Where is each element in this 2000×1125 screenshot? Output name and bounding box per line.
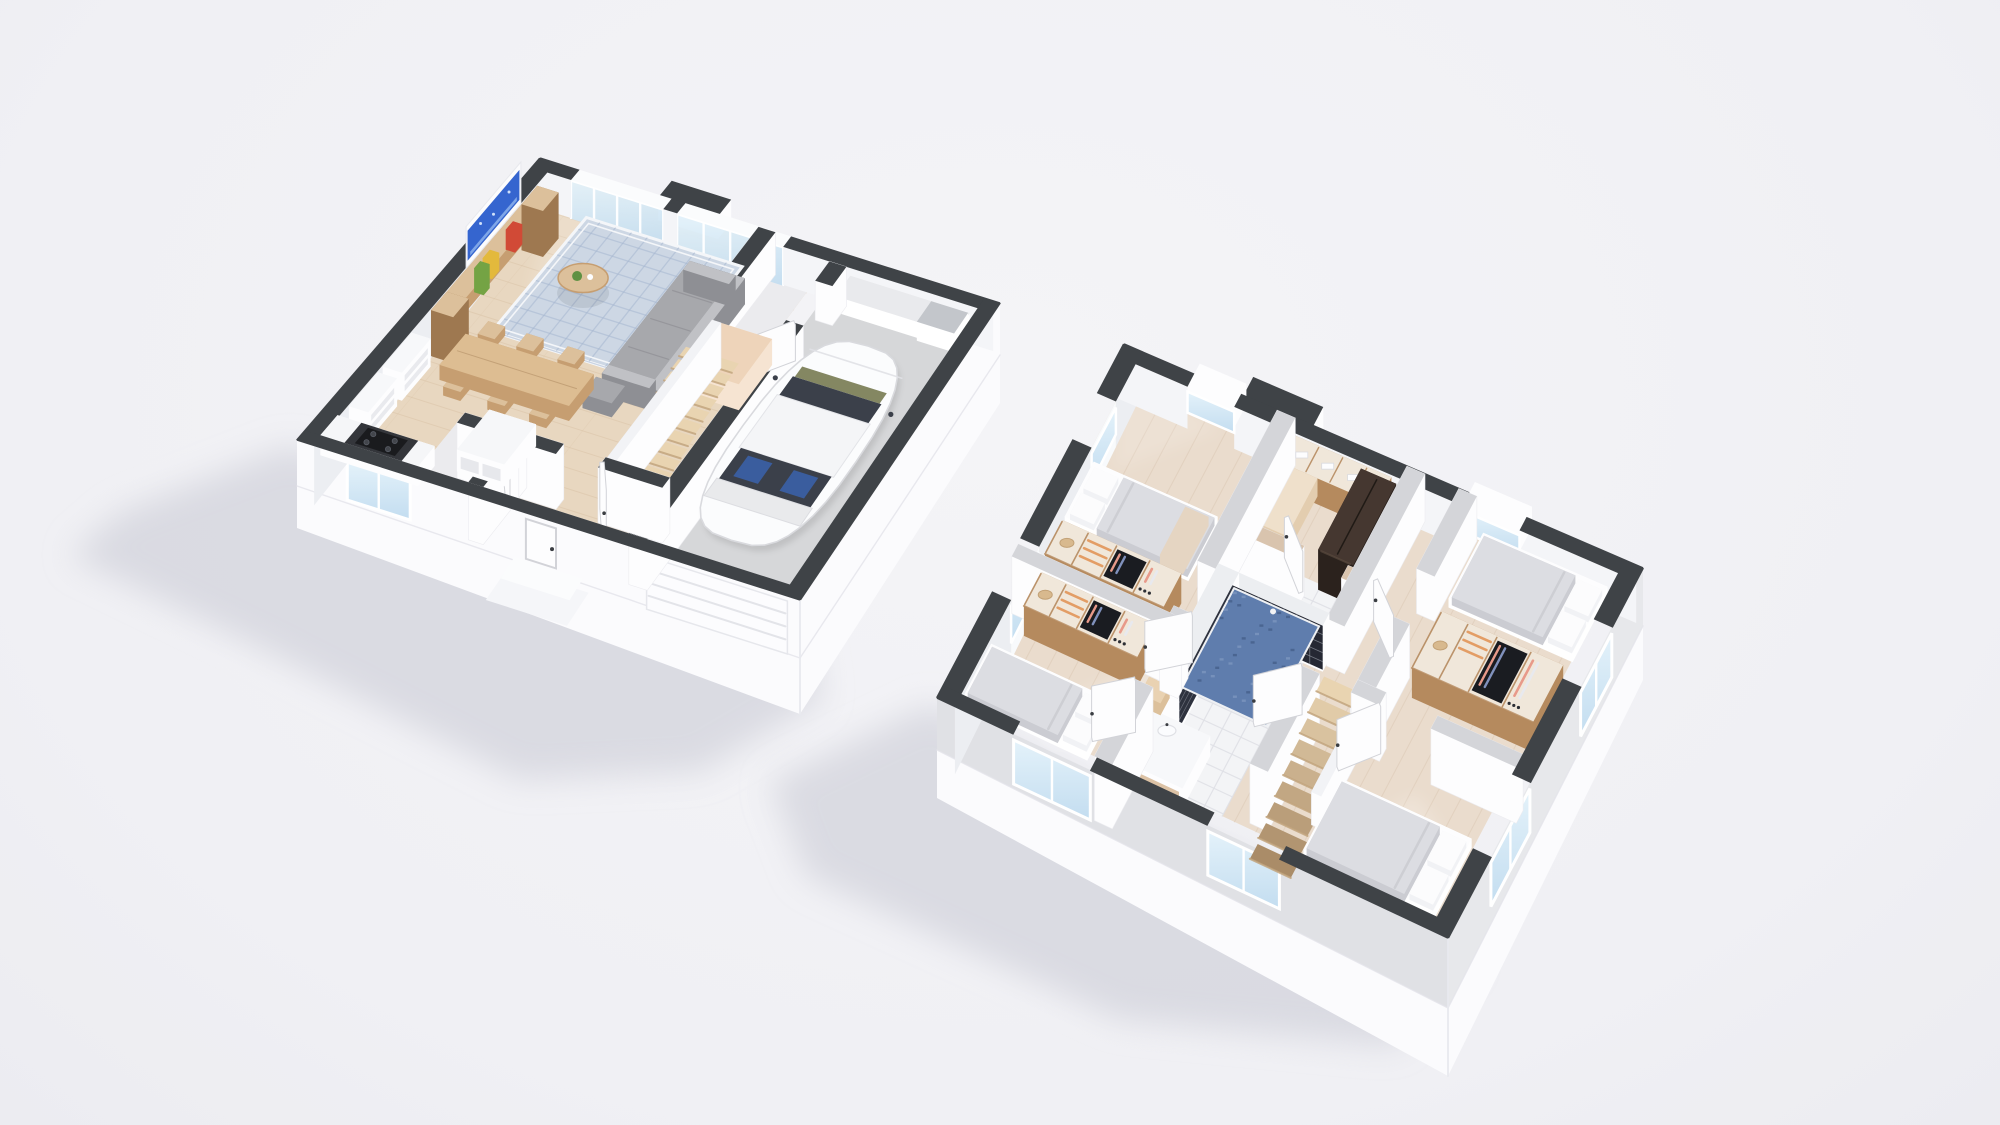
bedroom3-door (1090, 677, 1135, 742)
coffee-table (557, 264, 609, 309)
entry-door (526, 519, 556, 569)
ground-floor-plan (70, 157, 1001, 780)
bedroom1-door (1143, 612, 1192, 673)
floorplan-stage (0, 0, 2000, 1125)
floorplan-canvas (0, 0, 2000, 1125)
